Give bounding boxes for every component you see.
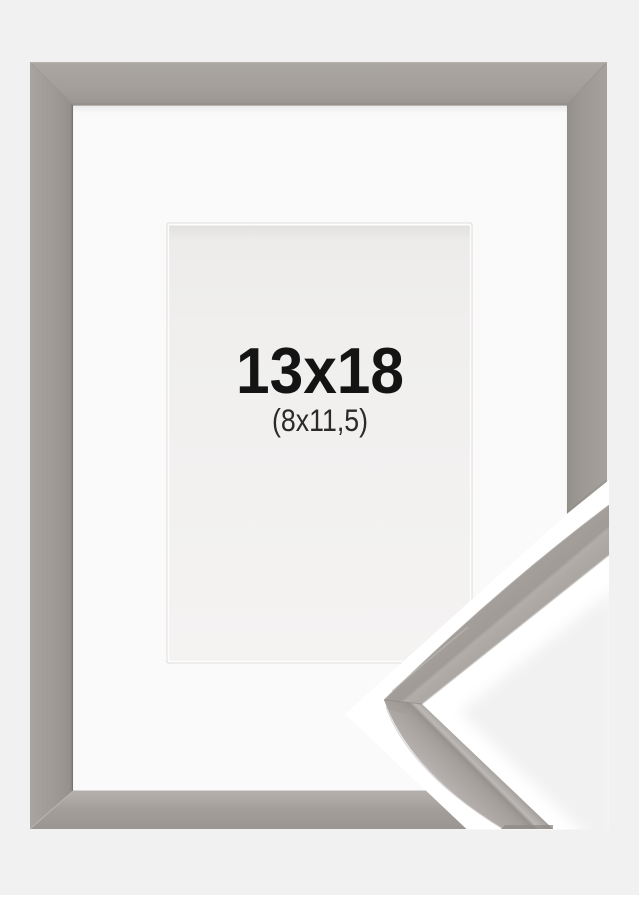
svg-text:(8x11,5): (8x11,5): [272, 402, 368, 438]
svg-text:13x18: 13x18: [236, 334, 404, 407]
